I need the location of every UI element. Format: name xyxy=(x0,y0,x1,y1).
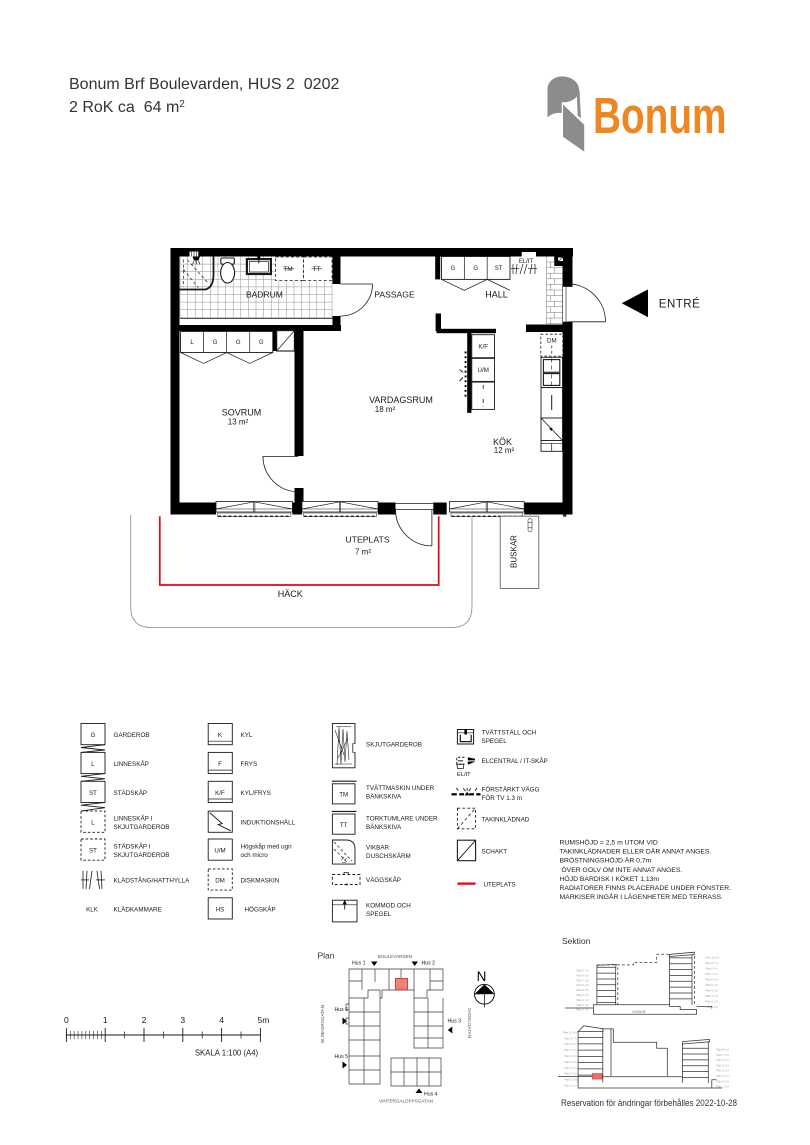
svg-text:Plan 8, 6 tr: Plan 8, 6 tr xyxy=(717,1048,730,1052)
svg-text:SKJUTGARDEROB: SKJUTGARDEROB xyxy=(366,742,422,749)
svg-text:Plan 7, 5 tr: Plan 7, 5 tr xyxy=(576,978,589,982)
svg-text:G: G xyxy=(451,266,456,272)
svg-text:SADELGATAN: SADELGATAN xyxy=(467,1008,472,1038)
svg-text:Plan 6, 4 tr: Plan 6, 4 tr xyxy=(717,1058,730,1062)
svg-text:Hus 5: Hus 5 xyxy=(334,1054,348,1060)
svg-text:2: 2 xyxy=(142,1015,147,1025)
svg-text:Plan 10, 8 tr: Plan 10, 8 tr xyxy=(563,1030,577,1034)
svg-text:Plan 1, 0 tr: Plan 1, 0 tr xyxy=(564,1084,577,1088)
svg-text:Hus 3: Hus 3 xyxy=(448,1019,462,1025)
svg-text:Plan 8, 6 tr: Plan 8, 6 tr xyxy=(706,967,719,971)
svg-text:Plan 8, 6 tr: Plan 8, 6 tr xyxy=(576,973,589,977)
svg-text:Plan 6, 4 tr: Plan 6, 4 tr xyxy=(576,983,589,987)
svg-text:N: N xyxy=(477,969,487,984)
svg-text:SCHAKT: SCHAKT xyxy=(482,849,508,856)
svg-text:Sektion: Sektion xyxy=(562,936,591,946)
svg-text:VÄGGSKÅP: VÄGGSKÅP xyxy=(366,875,401,884)
svg-text:K/F: K/F xyxy=(215,790,225,797)
svg-text:Hus 1: Hus 1 xyxy=(352,961,366,967)
svg-text:SPEGEL: SPEGEL xyxy=(482,738,508,745)
svg-text:KYL: KYL xyxy=(241,732,253,739)
svg-text:Plan 2, 0 tr: Plan 2, 0 tr xyxy=(717,1079,730,1083)
svg-text:L: L xyxy=(91,761,95,768)
svg-text:Plan 4, 2 tr: Plan 4, 2 tr xyxy=(706,989,719,993)
svg-text:G: G xyxy=(259,340,264,346)
svg-text:KLÄDSTÅNG/HATTHYLLA: KLÄDSTÅNG/HATTHYLLA xyxy=(114,875,191,884)
svg-text:SKJUTGARDEROB: SKJUTGARDEROB xyxy=(114,852,170,859)
svg-text:Hus 4: Hus 4 xyxy=(424,1092,438,1098)
svg-text:UTEPLATS: UTEPLATS xyxy=(345,535,389,545)
svg-text:BÄNKSKIVA: BÄNKSKIVA xyxy=(366,792,402,800)
svg-text:INDUKTIONSHÄLL: INDUKTIONSHÄLL xyxy=(241,819,296,827)
svg-text:TVÄTTSTÄLL OCH: TVÄTTSTÄLL OCH xyxy=(482,729,537,737)
svg-text:RADIATORER FINNS PLACERADE UND: RADIATORER FINNS PLACERADE UNDER FÖNSTER… xyxy=(560,884,732,892)
svg-text:DUSCHSKÄRM: DUSCHSKÄRM xyxy=(366,852,411,860)
svg-text:Plan 3, 1 tr: Plan 3, 1 tr xyxy=(706,994,719,998)
svg-text:VIKBAR: VIKBAR xyxy=(366,845,390,852)
svg-text:4: 4 xyxy=(219,1015,224,1025)
svg-text:och micro: och micro xyxy=(241,852,269,859)
svg-text:ST: ST xyxy=(89,790,97,797)
svg-text:EL/IT: EL/IT xyxy=(519,259,534,265)
svg-text:TVÄTTMASKIN UNDER: TVÄTTMASKIN UNDER xyxy=(366,784,435,792)
svg-text:Plan 4, 2 tr: Plan 4, 2 tr xyxy=(717,1069,730,1073)
svg-text:Hus 2: Hus 2 xyxy=(422,961,436,967)
svg-text:Plan 2, 0 tr: Plan 2, 0 tr xyxy=(576,1003,589,1007)
svg-text:G: G xyxy=(236,340,241,346)
svg-text:FÖRSTÄRKT VÄGG: FÖRSTÄRKT VÄGG xyxy=(482,786,540,794)
svg-text:MARKISER INGÅR I LÄGENHETER ME: MARKISER INGÅR I LÄGENHETER MED TERRASS. xyxy=(560,892,724,901)
svg-text:Plan 8, 6 tr: Plan 8, 6 tr xyxy=(564,1042,577,1046)
svg-text:TORKTUMLARE UNDER: TORKTUMLARE UNDER xyxy=(366,816,438,823)
svg-text:13 m²: 13 m² xyxy=(228,417,249,426)
svg-text:U/M: U/M xyxy=(214,848,225,855)
svg-text:RUMSHÖJD = 2,5 m UTOM VID: RUMSHÖJD = 2,5 m UTOM VID xyxy=(560,839,658,847)
svg-text:Reservation för ändringar förb: Reservation för ändringar förbehålles 20… xyxy=(561,1097,737,1108)
svg-text:Plan 5, 3 tr: Plan 5, 3 tr xyxy=(564,1060,577,1064)
svg-text:Plan 7, 5 tr: Plan 7, 5 tr xyxy=(717,1053,730,1057)
svg-text:HS: HS xyxy=(216,906,225,913)
svg-text:Bonum Brf Boulevarden, HUS 2: Bonum Brf Boulevarden, HUS 2 0202 xyxy=(69,76,339,93)
svg-text:ÖVER GOLV OM INTE ANNAT ANGES.: ÖVER GOLV OM INTE ANNAT ANGES. xyxy=(560,866,683,874)
svg-text:1: 1 xyxy=(103,1015,108,1025)
svg-text:Plan 1, 0 tr: Plan 1, 0 tr xyxy=(717,1085,730,1089)
svg-text:3: 3 xyxy=(180,1015,185,1025)
svg-text:Plan: Plan xyxy=(318,951,335,961)
svg-text:TT: TT xyxy=(313,266,321,273)
svg-text:Plan 9, 7 tr: Plan 9, 7 tr xyxy=(706,961,719,965)
svg-text:SKALA 1:100 (A4): SKALA 1:100 (A4) xyxy=(195,1049,259,1058)
svg-text:0: 0 xyxy=(64,1015,69,1025)
svg-text:BRÖSTNINGSHÖJD ÄR 0,7m: BRÖSTNINGSHÖJD ÄR 0,7m xyxy=(560,857,652,865)
svg-text:BUSKAR: BUSKAR xyxy=(510,535,519,568)
svg-text:EL/IT: EL/IT xyxy=(457,772,471,778)
svg-text:SPEGEL: SPEGEL xyxy=(366,911,392,918)
svg-text:TM: TM xyxy=(339,792,348,799)
svg-text:HALL: HALL xyxy=(485,290,508,300)
svg-text:UTEPLATS: UTEPLATS xyxy=(484,881,516,888)
svg-text:G: G xyxy=(213,340,218,346)
svg-text:18 m²: 18 m² xyxy=(375,405,396,414)
svg-text:U/M: U/M xyxy=(478,367,489,374)
svg-text:Plan 6, 4 tr: Plan 6, 4 tr xyxy=(706,978,719,982)
svg-text:GARDEROB: GARDEROB xyxy=(114,732,150,739)
svg-text:LINNESKÅP: LINNESKÅP xyxy=(114,759,149,768)
svg-text:BÄNKSKIVA: BÄNKSKIVA xyxy=(366,823,402,831)
svg-text:K/F: K/F xyxy=(478,344,488,351)
svg-text:L: L xyxy=(91,820,95,827)
svg-text:Plan 10, 8 tr: Plan 10, 8 tr xyxy=(706,956,720,960)
svg-text:Plan 7, 5 tr: Plan 7, 5 tr xyxy=(706,972,719,976)
svg-text:FRYS: FRYS xyxy=(241,761,258,768)
svg-text:VARDAGSRUM: VARDAGSRUM xyxy=(369,395,433,405)
svg-text:KOMMOD OCH: KOMMOD OCH xyxy=(366,903,411,910)
svg-text:GARAGE: GARAGE xyxy=(632,1010,646,1014)
svg-text:F: F xyxy=(218,761,222,768)
svg-text:BADRUM: BADRUM xyxy=(246,289,283,299)
svg-text:TM: TM xyxy=(283,266,292,273)
svg-text:TAKINKLÄDNADER ELLER DÄR ANNAT: TAKINKLÄDNADER ELLER DÄR ANNAT ANGES. xyxy=(560,848,712,856)
svg-text:FÖR TV 1.3 m: FÖR TV 1.3 m xyxy=(482,794,522,802)
svg-text:DM: DM xyxy=(215,877,225,884)
svg-text:STÄDSKÅP I: STÄDSKÅP I xyxy=(114,842,151,851)
svg-text:G: G xyxy=(473,266,478,272)
svg-text:ST: ST xyxy=(495,266,503,272)
svg-text:Plan 2, 0 tr: Plan 2, 0 tr xyxy=(564,1078,577,1082)
svg-text:Plan 1, 0 tr: Plan 1, 0 tr xyxy=(706,1005,719,1009)
svg-text:2 RoK ca 64 m2: 2 RoK ca 64 m2 xyxy=(69,99,185,116)
svg-text:BLINKERSGATAN: BLINKERSGATAN xyxy=(320,1005,325,1043)
svg-text:KLÄDKAMMARE: KLÄDKAMMARE xyxy=(114,905,162,913)
svg-text:DM: DM xyxy=(547,338,557,345)
svg-text:ENTRÉ: ENTRÉ xyxy=(659,298,700,311)
svg-text:Plan 3, 1 tr: Plan 3, 1 tr xyxy=(717,1074,730,1078)
svg-text:Plan 9, 7 tr: Plan 9, 7 tr xyxy=(576,969,589,973)
svg-text:PASSAGE: PASSAGE xyxy=(374,289,415,299)
svg-text:HÖJD BARDISK I KÖKET 1,13m: HÖJD BARDISK I KÖKET 1,13m xyxy=(560,875,660,883)
svg-text:DISKMASKIN: DISKMASKIN xyxy=(241,877,280,884)
svg-text:Plan 3, 1 tr: Plan 3, 1 tr xyxy=(576,998,589,1002)
svg-text:STÄDSKÅP: STÄDSKÅP xyxy=(114,788,148,797)
svg-text:Plan 6, 4 tr: Plan 6, 4 tr xyxy=(564,1054,577,1058)
svg-text:Plan 9, 7 tr: Plan 9, 7 tr xyxy=(564,1036,577,1040)
svg-text:HÄCK: HÄCK xyxy=(278,589,303,599)
svg-text:Plan 7, 5 tr: Plan 7, 5 tr xyxy=(564,1048,577,1052)
svg-text:ST: ST xyxy=(89,848,97,855)
svg-text:7 m²: 7 m² xyxy=(355,548,371,557)
svg-text:Plan 5, 3 tr: Plan 5, 3 tr xyxy=(706,983,719,987)
svg-text:Plan 2, 0 tr: Plan 2, 0 tr xyxy=(706,1000,719,1004)
svg-text:SKJUTGARDEROB: SKJUTGARDEROB xyxy=(114,824,170,831)
svg-text:TT: TT xyxy=(340,822,348,829)
svg-text:VINTERGALOPPSGATAN: VINTERGALOPPSGATAN xyxy=(379,1099,433,1104)
svg-text:Plan 1, 0 tr: Plan 1, 0 tr xyxy=(576,1008,589,1012)
svg-text:LINNESKÅP I: LINNESKÅP I xyxy=(114,814,153,823)
svg-text:Bonum: Bonum xyxy=(593,87,726,144)
svg-text:BOULEVARDEN: BOULEVARDEN xyxy=(378,954,412,959)
svg-text:KLK: KLK xyxy=(86,906,99,913)
svg-text:5m: 5m xyxy=(257,1015,269,1025)
svg-text:Plan 4, 2 tr: Plan 4, 2 tr xyxy=(564,1066,577,1070)
svg-text:Högskåp med ugn: Högskåp med ugn xyxy=(241,843,293,851)
svg-text:HÖGSKÅP: HÖGSKÅP xyxy=(245,904,276,913)
svg-text:12 m²: 12 m² xyxy=(494,446,515,455)
svg-text:SOVRUM: SOVRUM xyxy=(222,407,262,417)
svg-text:ELCENTRAL / IT-SKÅP: ELCENTRAL / IT-SKÅP xyxy=(482,756,548,765)
svg-text:G: G xyxy=(91,732,96,739)
svg-text:TAKINKLÄDNAD: TAKINKLÄDNAD xyxy=(482,816,530,824)
svg-text:Plan 4, 2 tr: Plan 4, 2 tr xyxy=(576,993,589,997)
svg-text:KYL/FRYS: KYL/FRYS xyxy=(241,790,271,797)
svg-text:Plan 5, 3 tr: Plan 5, 3 tr xyxy=(717,1063,730,1067)
svg-text:Plan 5, 3 tr: Plan 5, 3 tr xyxy=(576,988,589,992)
svg-text:Plan 3, 1 tr: Plan 3, 1 tr xyxy=(564,1072,577,1076)
